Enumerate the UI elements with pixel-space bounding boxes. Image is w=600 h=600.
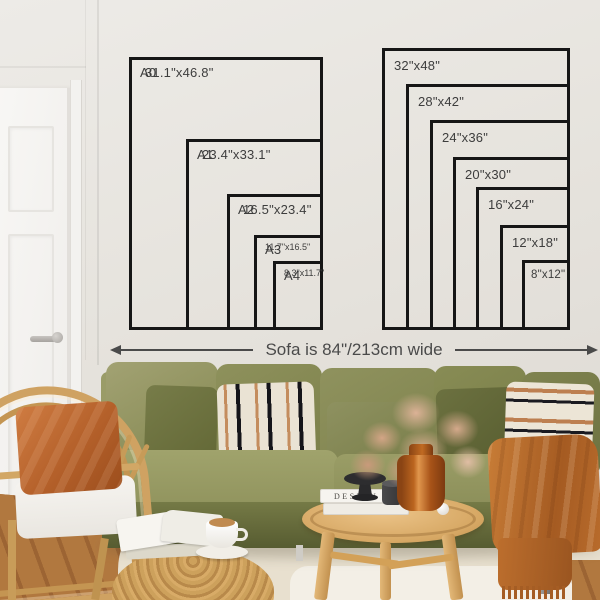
- wall-molding: [0, 66, 86, 68]
- terracotta-pillow: [15, 401, 123, 496]
- chair-leg: [8, 520, 16, 600]
- terracotta-pillow-shade: [15, 401, 123, 496]
- arrowhead-left-icon: [110, 345, 121, 355]
- amber-vase: [397, 455, 445, 511]
- throw-blanket-fringe: [502, 586, 566, 599]
- throw-blanket-drape: [498, 538, 572, 590]
- label-8x12: 8"x12": [531, 269, 565, 281]
- label-12x18: 12"x18": [512, 235, 558, 250]
- arrowhead-right-icon: [587, 345, 598, 355]
- living-room-scene: DESIGN A031.1"x46.8" A12: [0, 0, 600, 600]
- label-28x42: 28"x42": [418, 94, 464, 109]
- frame-8x12: 8"x12": [522, 260, 570, 330]
- wall-corner-line-2: [85, 0, 86, 360]
- wall-corner-line: [97, 0, 99, 365]
- arrow-line-right: [455, 349, 587, 351]
- coffee-latte: [209, 518, 235, 527]
- label-20x30: 20"x30": [465, 167, 511, 182]
- arrow-line-left: [121, 349, 253, 351]
- a4-frame: A48.3"x11.7": [273, 261, 323, 330]
- door-handle-rosette: [52, 332, 63, 343]
- sofa-width-label: Sofa is 84"/213cm wide: [265, 340, 442, 360]
- label-24x36: 24"x36": [442, 130, 488, 145]
- table-leg: [380, 542, 391, 600]
- sofa-width-arrow: Sofa is 84"/213cm wide: [110, 338, 598, 362]
- label-32x48: 32"x48": [394, 58, 440, 73]
- door-panel-top: [8, 126, 54, 212]
- label-16x24: 16"x24": [488, 197, 534, 212]
- sofa-leg: [296, 545, 303, 561]
